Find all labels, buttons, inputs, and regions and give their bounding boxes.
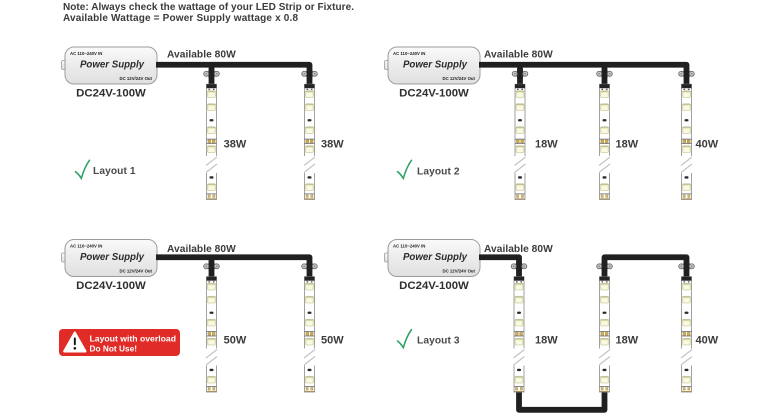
svg-text:Available 80W: Available 80W (167, 50, 236, 61)
svg-text:Available 80W: Available 80W (484, 50, 553, 61)
svg-text:18W: 18W (535, 335, 558, 347)
svg-text:Note: Always check the wattage: Note: Always check the wattage of your L… (63, 2, 354, 13)
svg-text:40W: 40W (696, 335, 719, 347)
svg-text:Layout 2: Layout 2 (417, 166, 460, 177)
svg-text:38W: 38W (321, 139, 344, 151)
svg-text:Layout with overload: Layout with overload (90, 334, 177, 343)
svg-text:18W: 18W (535, 139, 558, 151)
svg-text:40W: 40W (696, 139, 719, 151)
svg-text:38W: 38W (224, 139, 247, 151)
svg-text:Layout 3: Layout 3 (417, 335, 460, 346)
svg-text:Available Wattage = Power Supp: Available Wattage = Power Supply wattage… (63, 13, 298, 24)
svg-text:18W: 18W (616, 139, 639, 151)
svg-text:18W: 18W (616, 335, 639, 347)
svg-text:Layout 1: Layout 1 (93, 166, 136, 177)
svg-text:Available 80W: Available 80W (167, 244, 236, 255)
svg-text:50W: 50W (224, 335, 247, 347)
svg-text:Available 80W: Available 80W (484, 244, 553, 255)
svg-text:50W: 50W (321, 335, 344, 347)
svg-text:Do Not Use!: Do Not Use! (90, 345, 138, 354)
